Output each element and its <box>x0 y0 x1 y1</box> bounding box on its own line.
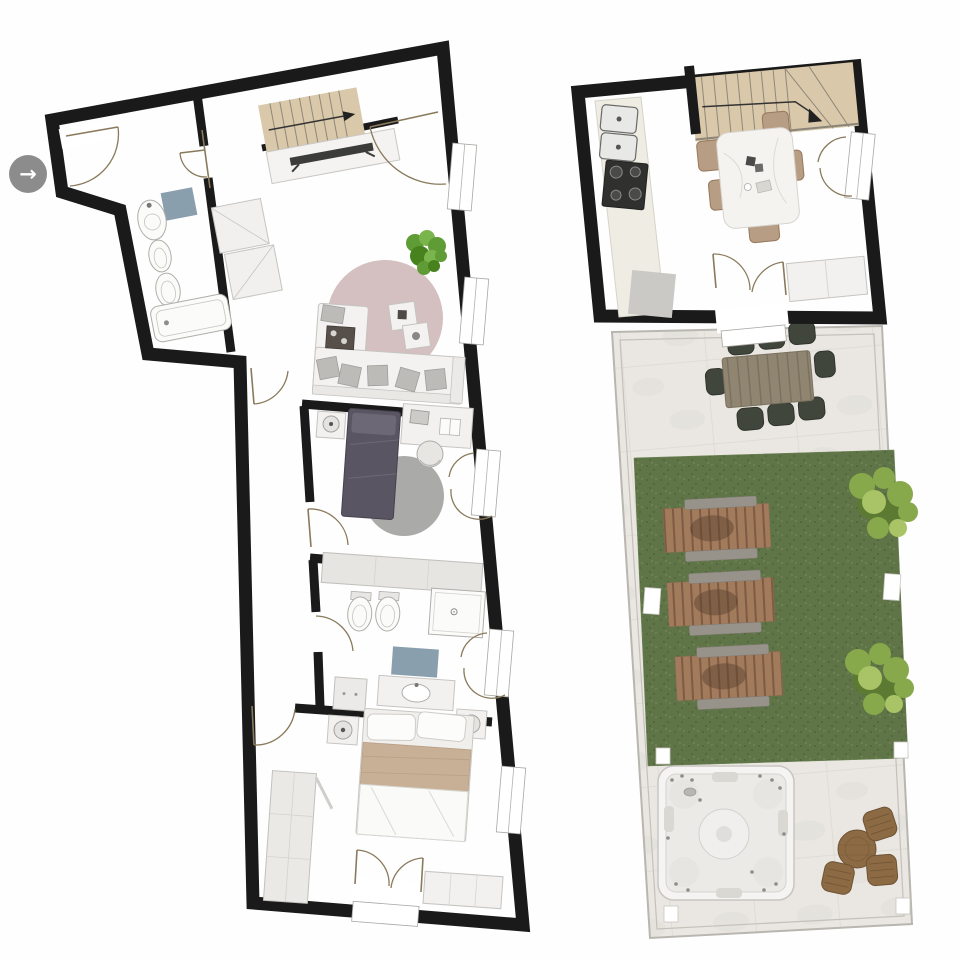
sofa-tray <box>326 326 355 350</box>
outdoor-chair <box>814 350 836 378</box>
floor-plan-graphic <box>0 0 960 960</box>
desk-chair <box>417 441 443 467</box>
outdoor-table <box>722 350 814 407</box>
garden-door <box>350 877 423 926</box>
double-bed <box>356 707 475 841</box>
sideboard <box>786 256 867 301</box>
terrace <box>612 319 918 938</box>
french-window <box>484 629 513 697</box>
kitchen-mat <box>628 270 676 318</box>
shower <box>428 588 485 638</box>
arrow-right-icon: → <box>19 162 37 186</box>
hot-tub <box>658 766 794 900</box>
stool <box>866 854 899 887</box>
window <box>447 143 476 211</box>
cabinet <box>333 677 367 711</box>
vanity-unit <box>377 675 455 710</box>
outdoor-chair <box>767 402 795 426</box>
bath-mat <box>391 646 439 677</box>
nightstand <box>327 715 359 745</box>
next-image-button[interactable]: → <box>9 155 47 193</box>
dining-table <box>716 127 801 230</box>
nightstand <box>316 411 346 439</box>
outdoor-chair <box>788 321 816 345</box>
outdoor-chair <box>736 407 764 431</box>
french-window <box>471 449 500 517</box>
bath-mat <box>161 187 198 221</box>
laptop <box>410 410 429 425</box>
floor-plan-viewer: → <box>0 0 960 960</box>
stool <box>820 860 856 896</box>
desk <box>401 404 474 449</box>
window <box>496 766 525 834</box>
window <box>459 277 488 345</box>
coffee-table <box>402 322 430 349</box>
single-bed <box>341 408 400 519</box>
cooktop <box>602 160 648 210</box>
dresser <box>423 871 503 908</box>
